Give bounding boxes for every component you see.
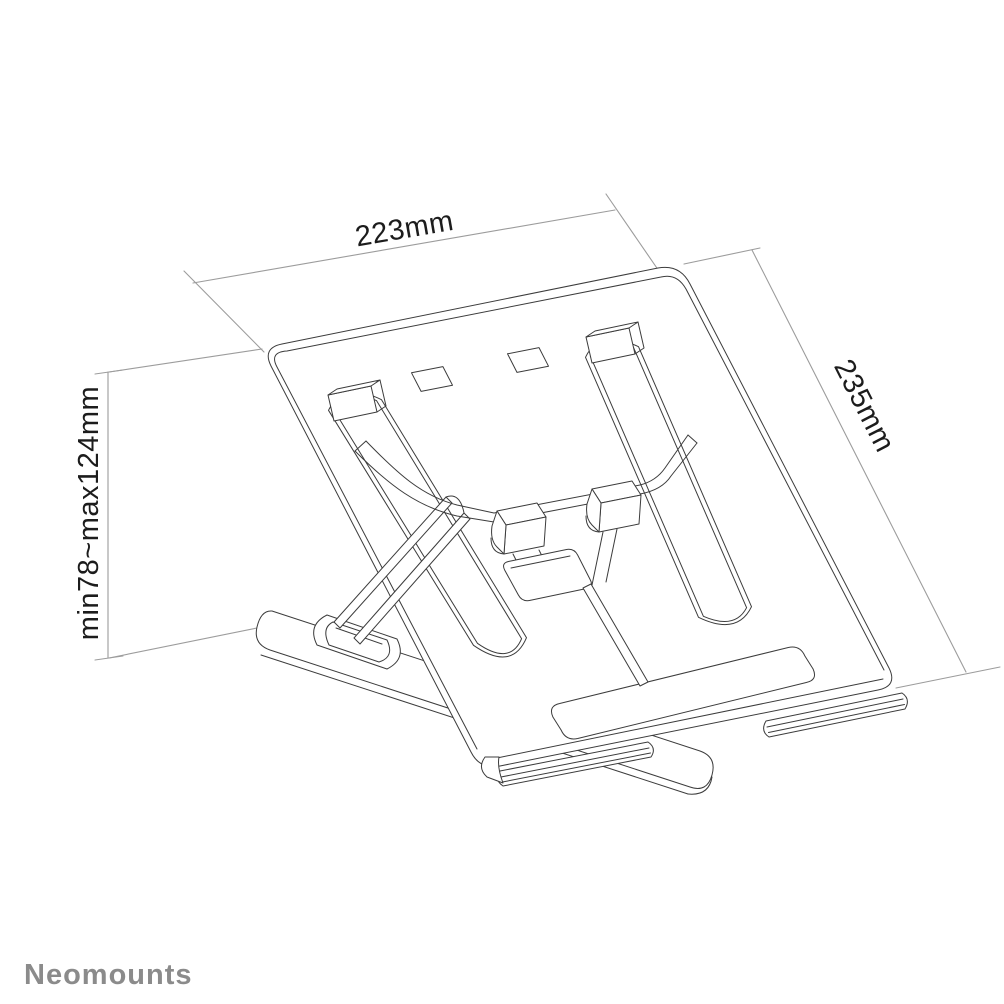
height-dimension-label: min78~max124mm	[73, 386, 105, 640]
height-extension-bottom	[109, 628, 257, 658]
height-extension-top	[109, 349, 262, 372]
laptop-stand-technical-drawing: 223mm 235mm min78~max124mm Neomounts	[0, 0, 1004, 1004]
width-extension-right	[606, 194, 661, 274]
depth-extension-top	[684, 248, 760, 264]
brand-logo-text: Neomounts	[24, 959, 193, 991]
depth-extension-bottom	[896, 667, 1000, 688]
stand-drawing	[256, 267, 907, 794]
depth-dimension-label: 235mm	[827, 354, 901, 457]
technical-drawing-page: 223mm 235mm min78~max124mm Neomounts	[0, 0, 1004, 1004]
width-extension-left	[184, 271, 264, 352]
